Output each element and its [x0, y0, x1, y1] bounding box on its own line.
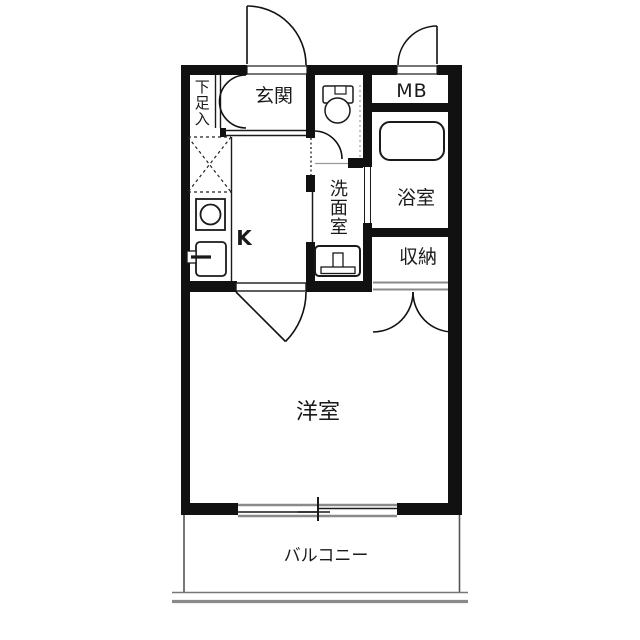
room-label-western-room: 洋室 — [287, 401, 349, 424]
sink-icon — [187, 242, 226, 276]
stove-icon — [196, 199, 225, 230]
kitchen-door-opening — [236, 283, 306, 291]
shoe-cabinet-door-arcs — [220, 75, 247, 128]
toilet-icon — [323, 86, 353, 123]
room-label-entrance: 玄関 — [248, 87, 300, 107]
room-label-storage: 収納 — [392, 248, 444, 268]
bathroom-door — [365, 167, 371, 223]
mb-door-arc — [398, 26, 437, 65]
entrance-door-opening — [247, 66, 307, 74]
washbasin-icon — [315, 246, 360, 276]
room-label-shoe-storage: 下足入 — [193, 77, 209, 129]
kitchen-door-arc — [236, 292, 306, 342]
closet-opening — [373, 283, 448, 290]
mb-door-opening — [397, 66, 437, 74]
dashed-x-box — [188, 137, 231, 192]
room-label-kitchen: K — [233, 228, 255, 249]
closet-door-arcs — [373, 292, 453, 332]
room-label-washroom: 洗面室 — [327, 175, 346, 239]
floor-plan-drawing — [0, 0, 640, 640]
floor-plan: 下足入 玄関 MB 洗面室 浴室 収納 K 洋室 バルコニー — [0, 0, 640, 640]
toilet-door-arc — [314, 131, 342, 159]
room-label-bathroom: 浴室 — [390, 189, 442, 209]
sliding-window — [238, 497, 397, 521]
room-label-balcony: バルコニー — [274, 548, 378, 566]
room-label-meter-box: MB — [391, 82, 433, 102]
entrance-door-arc — [247, 6, 306, 65]
bathtub-icon — [380, 122, 444, 160]
